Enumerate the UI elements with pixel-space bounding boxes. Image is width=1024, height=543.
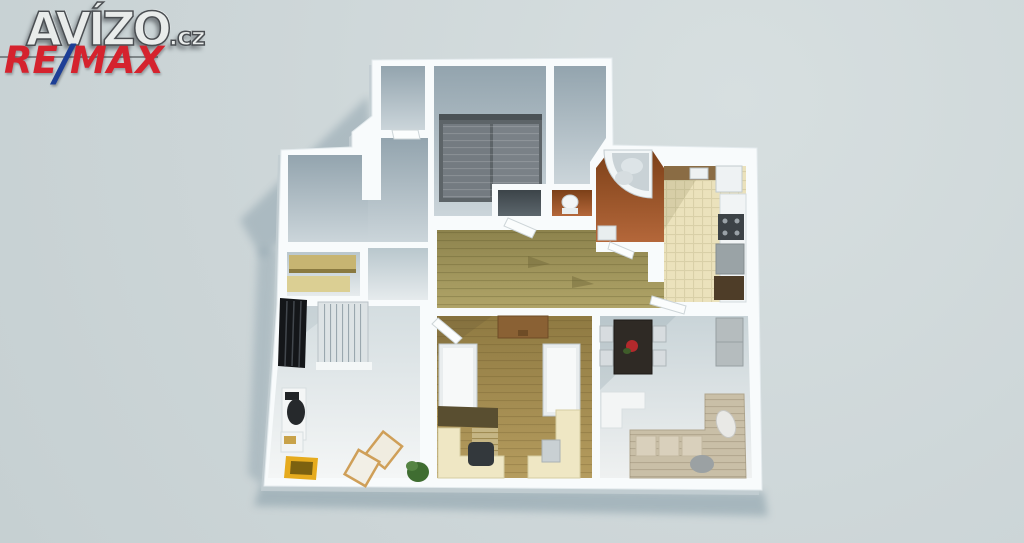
kitchen-counter-dark [714,276,744,300]
kitchen-sink [690,168,708,179]
living-shelf-dark [438,406,498,428]
study-radiator-bars [320,304,366,362]
closet-shelf-lower [287,276,350,292]
closet-shelf-upper [289,255,356,271]
door-storage [392,130,420,139]
room-storage-floor [381,66,425,130]
kitchen-stove [718,214,744,240]
study-windowsill [316,362,372,370]
dining-sofa-cushion-1 [636,436,656,456]
dining-chair-2 [600,350,613,366]
dining-sofa-cushion-2 [659,436,679,456]
bathtub-pillow-2 [615,171,633,185]
dining-sofa-pillow-gray [690,455,714,473]
living-bed-right-mattress [547,348,576,412]
study-bench-top [290,461,313,475]
dining-sofa-cushion-3 [682,436,702,456]
kitchen-burner-1 [723,219,728,224]
study-plant-leaf [406,461,418,471]
kitchen-burner-4 [735,231,740,236]
kitchen-burner-3 [723,231,728,236]
remax-re-text: RE [4,39,58,82]
living-coffee-table [468,442,494,466]
dining-chair-4 [653,350,666,366]
kitchen-burner-2 [735,219,740,224]
toilet-bowl [562,195,578,209]
remax-logo: RE/MAX [4,42,164,79]
bathroom-sink [598,226,616,240]
room-wc-floor [498,190,541,216]
toilet-tank [562,208,578,214]
kitchen-fridge [716,166,742,192]
study-books [284,436,296,444]
remax-max-text: MAX [70,39,164,82]
dining-chair-3 [653,326,666,342]
study-monitor [285,392,299,400]
living-bed-left-mattress [443,348,473,416]
closet-shelf-edge [289,269,356,273]
dining-chair-1 [600,326,613,342]
dining-flowers-green [623,348,631,354]
room-left-top-floor [288,155,368,242]
room-vestibule-floor [368,248,428,300]
living-side-table [542,440,560,462]
study-office-chair [287,399,305,425]
kitchen-cabinet-gray [716,244,744,274]
bed-headboard [439,114,542,121]
avizo-tld-text: .cz [169,22,205,51]
living-dresser-handle [518,330,528,336]
